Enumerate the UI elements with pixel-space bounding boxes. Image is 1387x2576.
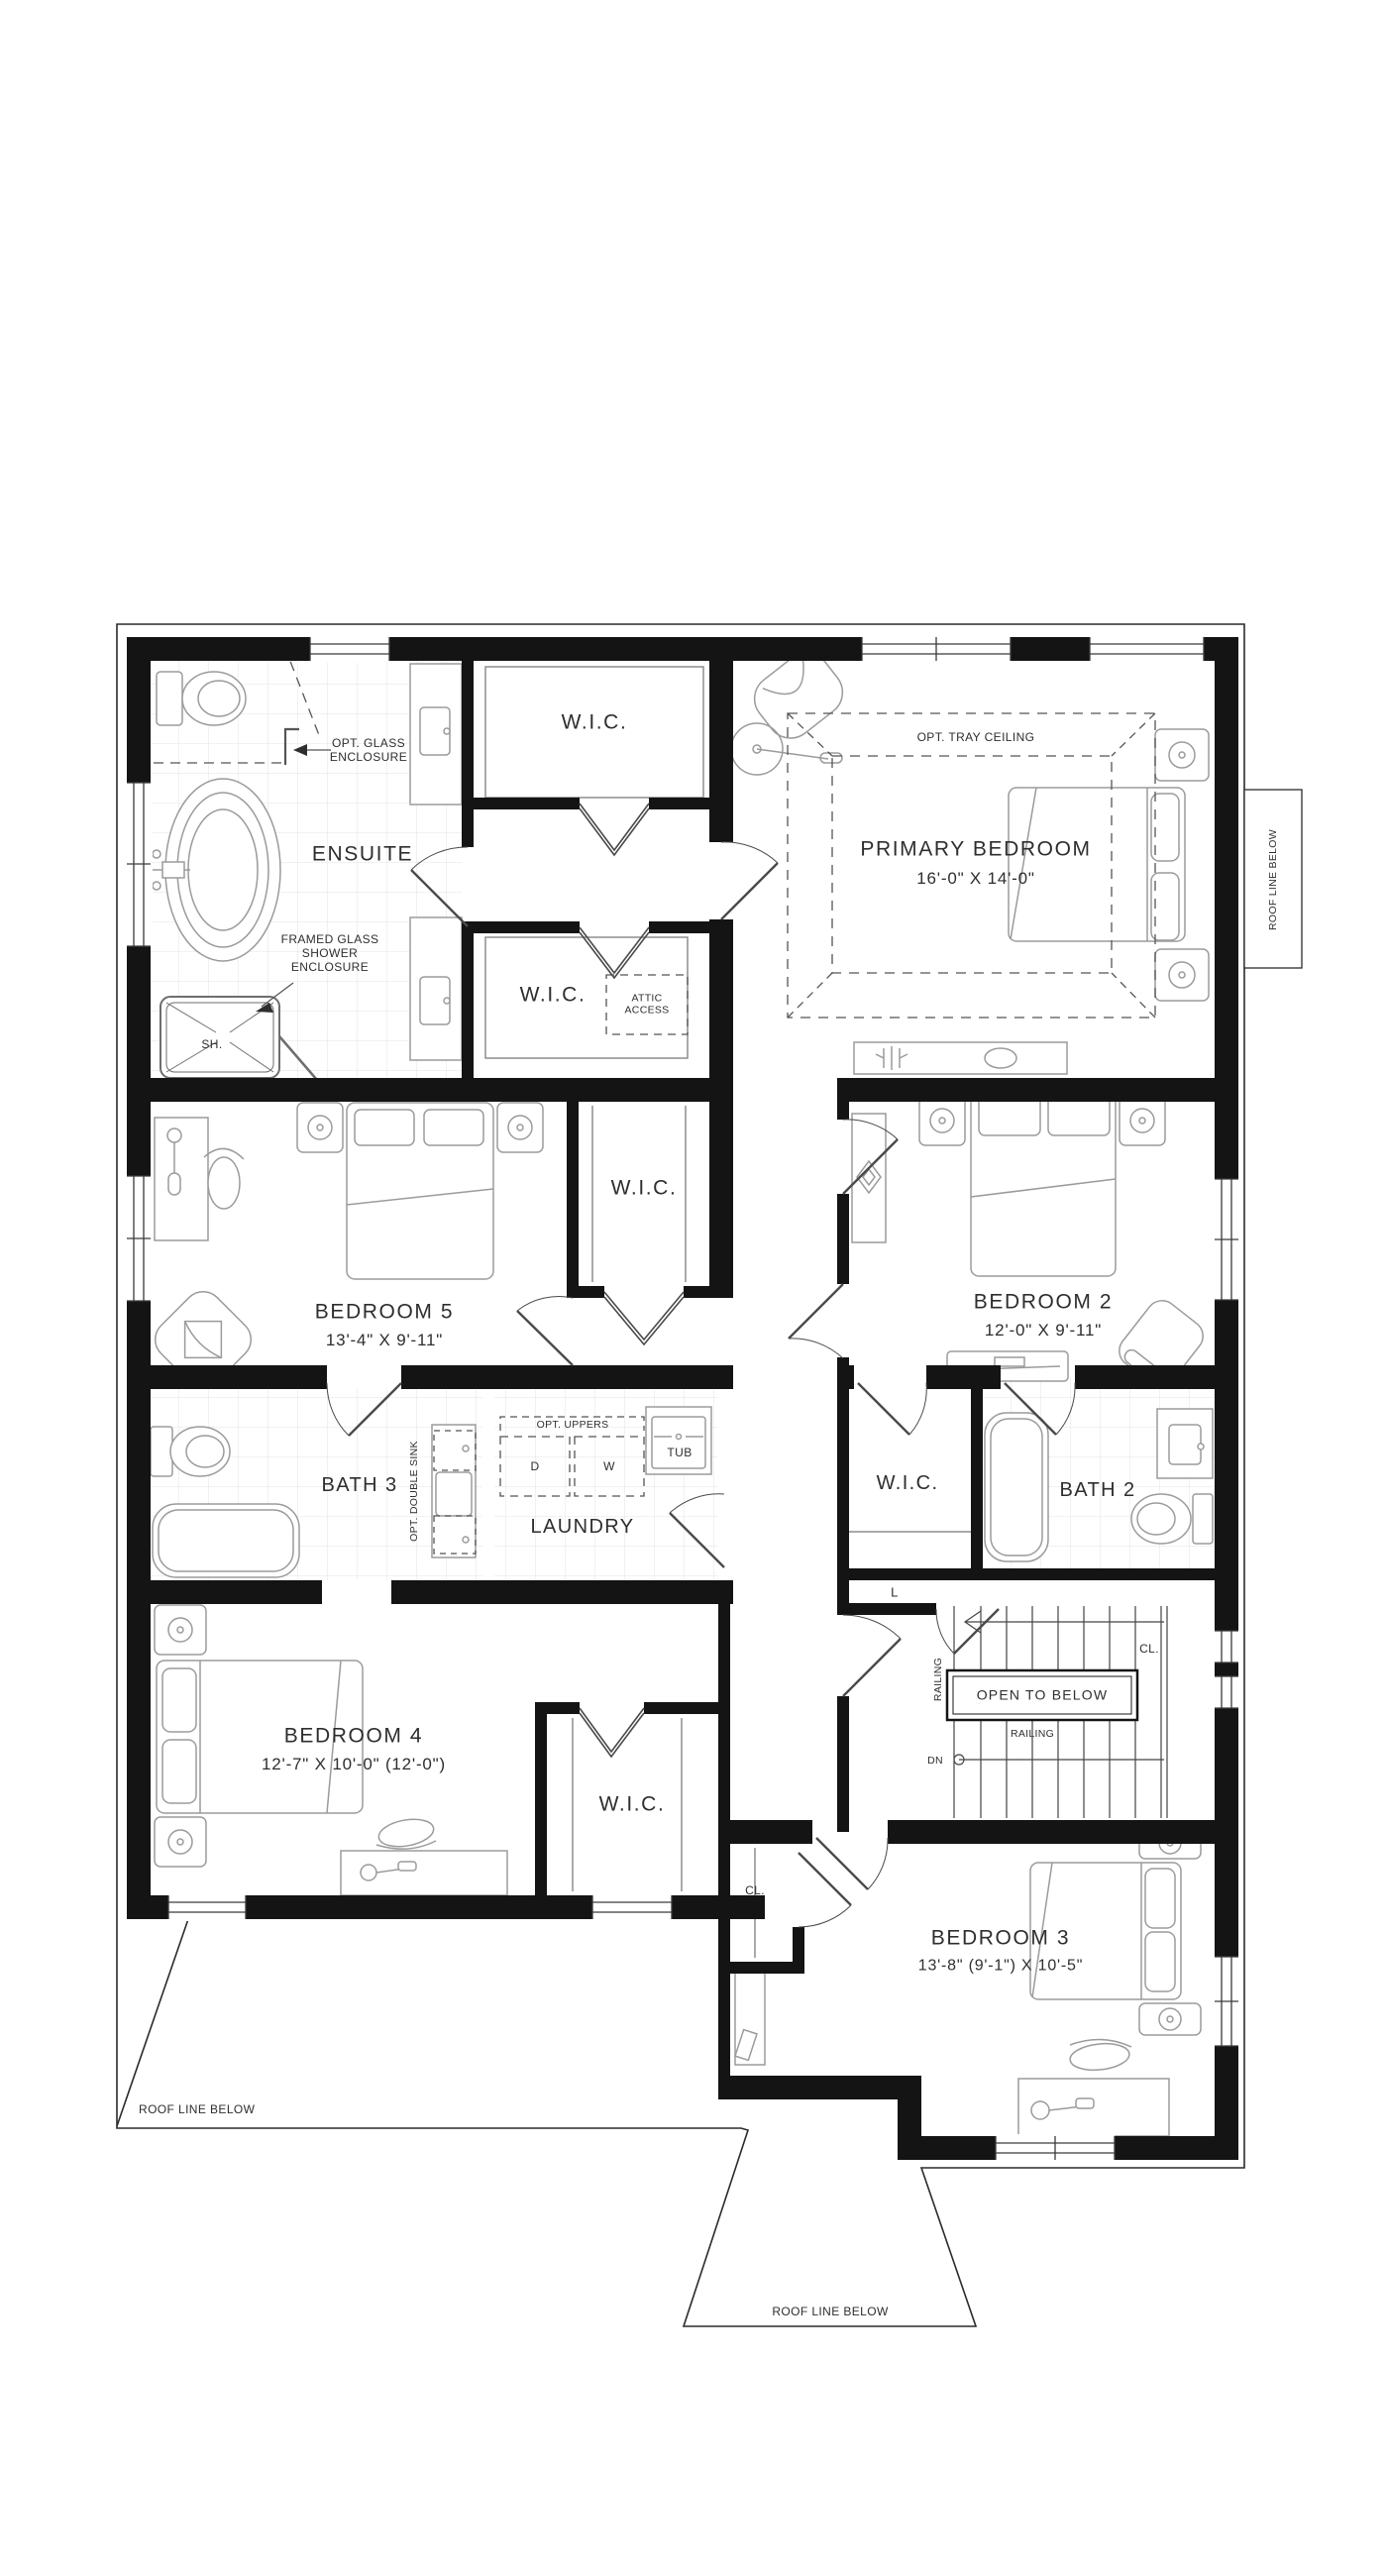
label-roof-left: ROOF LINE BELOW [139,2102,255,2116]
label-bedroom5-name: BEDROOM 5 [315,1301,454,1326]
stairs [947,1606,1167,1818]
label-dryer: D [530,1459,539,1473]
window [1213,1631,1240,1663]
floor-plan-drawing [0,0,1387,2576]
primary-dresser-icon [854,1042,1067,1074]
window [1213,1676,1240,1708]
label-wic-1: W.I.C. [562,711,628,736]
bed3-desk-icon [1018,2039,1169,2136]
laundry-tub-icon [646,1407,711,1474]
bed2-dresser-icon [852,1114,886,1242]
window [1090,635,1204,663]
label-wic-3: W.I.C. [611,1177,678,1202]
label-bedroom3-name: BEDROOM 3 [931,1927,1070,1952]
label-bath2: BATH 2 [1060,1479,1136,1503]
label-wic-5: W.I.C. [599,1793,666,1818]
label-primary-dims: 16'-0" X 14'-0" [916,869,1034,889]
label-railing-v: RAILING [932,1658,944,1701]
door-wic2-bifold [580,927,649,978]
door-wic3-bifold [604,1292,684,1344]
label-double-sink: OPT. DOUBLE SINK [408,1441,420,1542]
bed2-icon [919,1088,1165,1276]
window [125,1176,153,1301]
label-ensuite: ENSUITE [312,843,413,868]
label-tub: TUB [667,1446,692,1459]
bed5-desk-icon [155,1118,244,1240]
label-railing-h: RAILING [1011,1728,1054,1740]
label-wic-2: W.I.C. [520,984,587,1009]
label-bath3: BATH 3 [322,1474,398,1498]
door-bedroom5 [517,1297,573,1365]
label-washer: W [603,1459,615,1473]
label-roof-right: ROOF LINE BELOW [1267,829,1279,930]
floor-plan-page: ENSUITE OPT. GLASS ENCLOSURE FRAMED GLAS… [0,0,1387,2576]
label-closet-1: CL. [745,1883,765,1897]
toilet-icon [157,672,246,725]
label-linen: L [891,1584,899,1599]
window [125,783,153,946]
door-hall-stairs [843,1615,901,1696]
label-down: DN [927,1755,943,1767]
label-bedroom4-dims: 12'-7" X 10'-0" (12'-0") [262,1755,446,1774]
label-bedroom2-dims: 12'-0" X 9'-11" [985,1321,1102,1341]
window [168,1893,246,1921]
label-wic-4: W.I.C. [877,1472,939,1496]
label-opt-glass: OPT. GLASS ENCLOSURE [330,736,407,764]
door-linen [936,1609,999,1654]
bed4-desk-icon [341,1815,507,1895]
window [996,2134,1115,2162]
bed3-shelf-icon [735,1970,765,2065]
window [862,635,1011,663]
label-tray-ceiling: OPT. TRAY CEILING [917,730,1035,744]
label-bedroom4-name: BEDROOM 4 [284,1725,423,1750]
label-roof-center: ROOF LINE BELOW [772,2305,888,2318]
window [1213,1957,1240,2046]
label-framed-glass: FRAMED GLASS SHOWER ENCLOSURE [281,932,379,974]
door-primary [721,842,778,919]
bed5-icon [297,1103,543,1279]
window [310,635,389,663]
label-open-to-below: OPEN TO BELOW [977,1687,1109,1704]
window [592,1893,672,1921]
label-shower: SH. [201,1037,222,1051]
door-wic1-bifold [580,804,649,855]
door-bedroom2-b [789,1284,843,1358]
window [1213,1179,1240,1300]
label-closet-stairs: CL. [1139,1642,1159,1656]
label-bedroom3-dims: 13'-8" (9'-1") X 10'-5" [918,1958,1083,1977]
primary-bed-icon [1009,788,1185,941]
label-bedroom2-name: BEDROOM 2 [974,1291,1113,1316]
label-bedroom5-dims: 13'-4" X 9'-11" [326,1331,443,1350]
door-wic4 [858,1383,926,1435]
label-primary-name: PRIMARY BEDROOM [860,838,1091,863]
label-opt-uppers: OPT. UPPERS [537,1419,609,1431]
label-attic-access: ATTIC ACCESS [625,993,670,1018]
door-wic5-bifold [580,1708,644,1757]
label-laundry: LAUNDRY [530,1516,634,1540]
